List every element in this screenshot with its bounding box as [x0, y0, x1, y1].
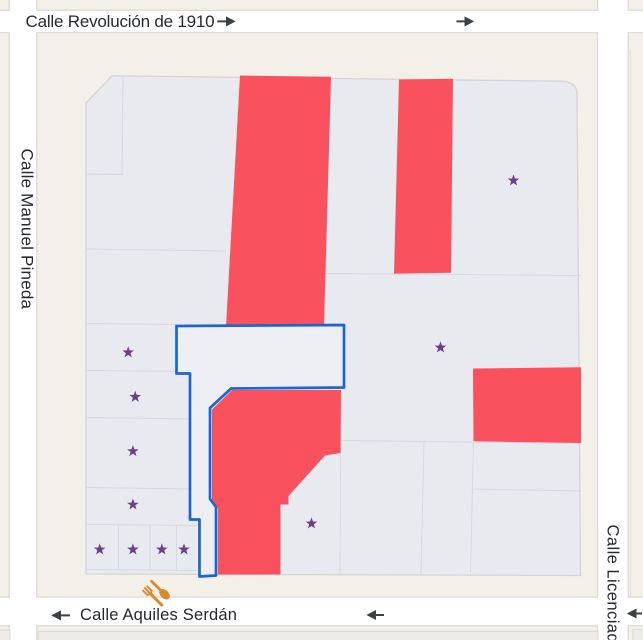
- svg-text:Calle Manuel Pineda: Calle Manuel Pineda: [18, 149, 37, 310]
- svg-text:Calle Revolución de 1910: Calle Revolución de 1910: [26, 12, 215, 31]
- svg-text:Calle Licenciado: Calle Licenciado: [603, 525, 622, 640]
- svg-text:Calle Aquiles Serdán: Calle Aquiles Serdán: [80, 606, 237, 624]
